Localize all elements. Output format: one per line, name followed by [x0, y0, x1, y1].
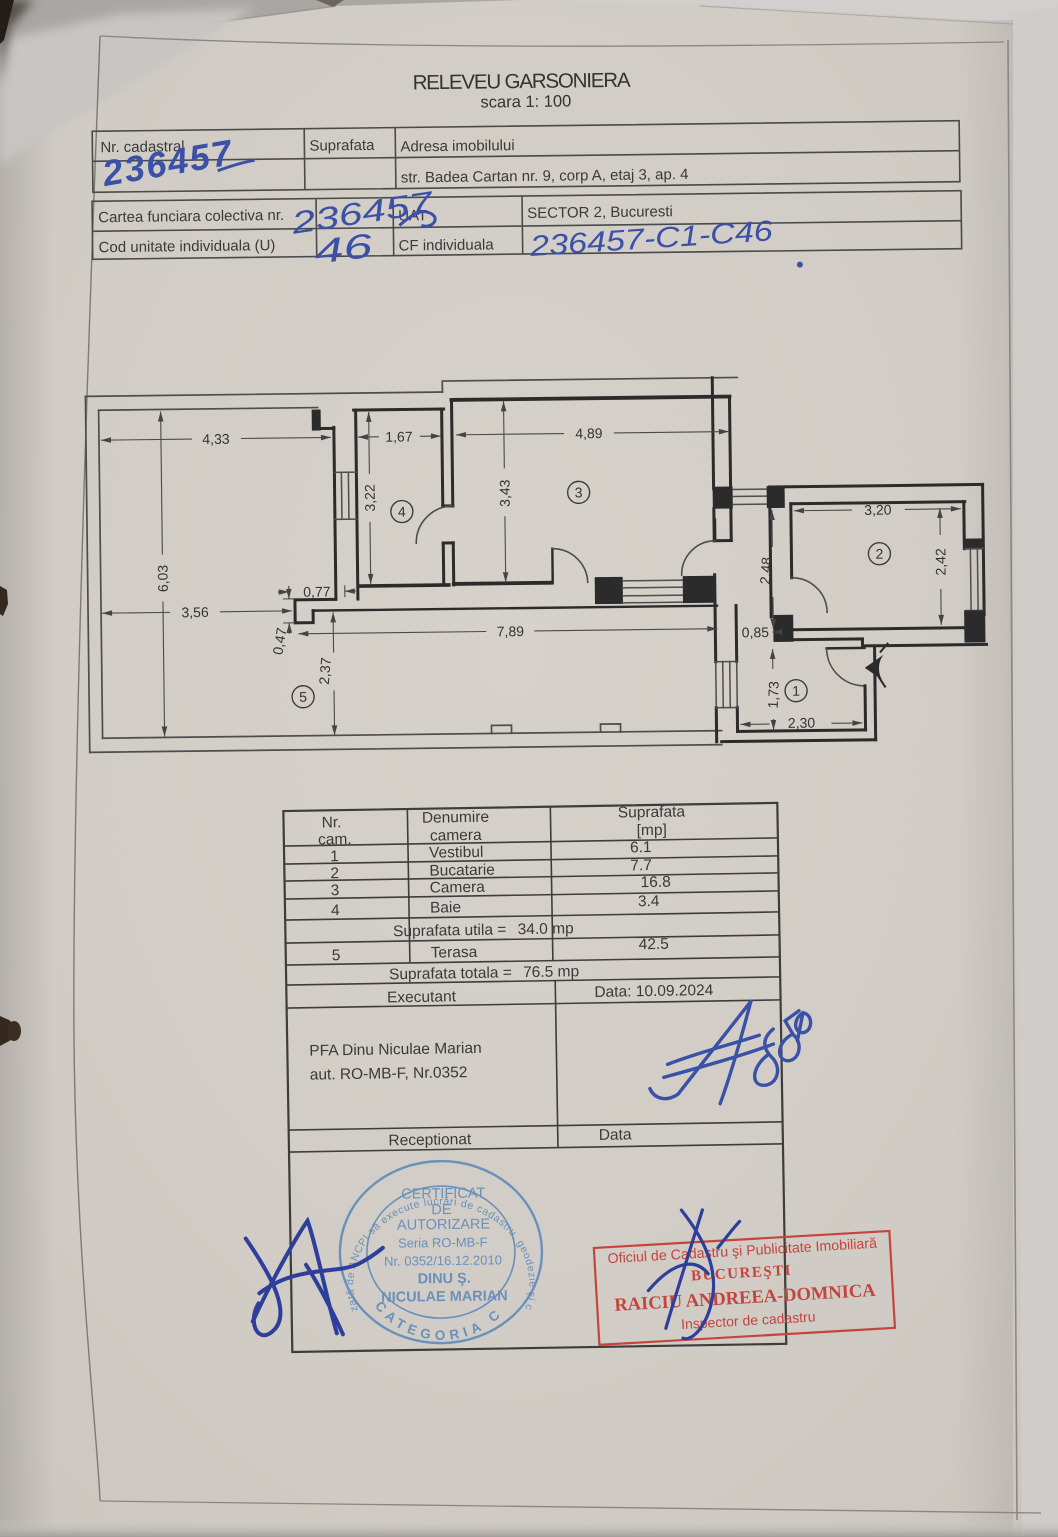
svg-text:PFA Dinu Niculae Marian: PFA Dinu Niculae Marian: [309, 1040, 482, 1060]
svg-text:4: 4: [398, 503, 406, 519]
svg-text:2,48: 2,48: [757, 556, 775, 585]
svg-text:Cartea funciara colectiva nr.: Cartea funciara colectiva nr.: [98, 207, 284, 226]
svg-text:[mp]: [mp]: [637, 822, 667, 839]
svg-text:4,33: 4,33: [202, 431, 230, 447]
svg-text:6,03: 6,03: [154, 565, 170, 593]
svg-text:AUTORIZARE: AUTORIZARE: [397, 1217, 491, 1234]
svg-text:46: 46: [312, 227, 374, 272]
svg-text:2: 2: [330, 865, 339, 882]
svg-text:3.4: 3.4: [638, 893, 660, 910]
svg-text:1: 1: [330, 848, 339, 865]
svg-text:3: 3: [575, 484, 583, 500]
svg-text:Cod unitate individuala (U): Cod unitate individuala (U): [99, 237, 276, 256]
svg-text:7.7: 7.7: [630, 857, 652, 874]
svg-text:3,20: 3,20: [864, 502, 892, 518]
svg-text:4: 4: [331, 902, 340, 919]
svg-text:CERTIFICAT: CERTIFICAT: [401, 1186, 485, 1203]
svg-text:cam.: cam.: [318, 831, 352, 849]
svg-text:3,56: 3,56: [181, 604, 209, 620]
svg-text:3,22: 3,22: [362, 484, 378, 512]
svg-text:Data: 10.09.2024: Data: 10.09.2024: [594, 982, 714, 1001]
svg-text:DE: DE: [431, 1202, 452, 1218]
svg-text:0,77: 0,77: [303, 583, 331, 599]
svg-text:2,42: 2,42: [932, 548, 948, 576]
svg-text:Nr.: Nr.: [322, 814, 342, 831]
svg-text:NICULAE MARIAN: NICULAE MARIAN: [381, 1288, 508, 1306]
svg-text:Camera: Camera: [430, 879, 486, 897]
svg-text:2: 2: [875, 546, 883, 562]
svg-text:DINU Ş.: DINU Ş.: [418, 1271, 471, 1288]
svg-text:3: 3: [331, 882, 340, 899]
svg-text:Receptionat: Receptionat: [388, 1131, 472, 1149]
svg-text:2,30: 2,30: [788, 714, 816, 730]
svg-text:Suprafata totala = 76.5 mp: Suprafata totala = 76.5 mp: [389, 963, 579, 983]
svg-text:1,73: 1,73: [765, 681, 782, 709]
svg-text:aut. RO-MB-F, Nr.0352: aut. RO-MB-F, Nr.0352: [310, 1064, 468, 1084]
svg-text:1,67: 1,67: [385, 428, 413, 444]
svg-text:Seria RO-MB-F: Seria RO-MB-F: [398, 1235, 488, 1251]
svg-text:str. Badea Cartan nr. 9, corp: str. Badea Cartan nr. 9, corp A, etaj 3,…: [401, 166, 689, 187]
svg-text:Suprafata: Suprafata: [618, 803, 686, 821]
svg-text:Vestibul: Vestibul: [429, 844, 484, 862]
svg-text:7,89: 7,89: [497, 623, 525, 639]
svg-text:2,37: 2,37: [316, 657, 334, 686]
svg-text:5: 5: [299, 689, 307, 705]
svg-text:Suprafata: Suprafata: [309, 137, 375, 155]
svg-text:0,85: 0,85: [742, 624, 770, 640]
svg-text:RELEVEU GARSONIERA: RELEVEU GARSONIERA: [412, 69, 631, 95]
svg-text:1: 1: [792, 683, 800, 699]
svg-text:Suprafata utila = 34.0 mp: Suprafata utila = 34.0 mp: [393, 920, 574, 940]
svg-text:Executant: Executant: [387, 988, 457, 1006]
svg-text:Baie: Baie: [430, 899, 461, 917]
svg-text:scara 1: 100: scara 1: 100: [480, 92, 571, 111]
svg-text:16.8: 16.8: [640, 874, 670, 891]
svg-text:42.5: 42.5: [638, 936, 668, 953]
svg-text:6.1: 6.1: [630, 839, 652, 856]
svg-text:SECTOR 2, Bucuresti: SECTOR 2, Bucuresti: [527, 203, 673, 222]
svg-text:camera: camera: [430, 827, 482, 845]
svg-text:Nr. 0352/16.12.2010: Nr. 0352/16.12.2010: [384, 1252, 502, 1268]
svg-text:Terasa: Terasa: [431, 944, 478, 962]
svg-text:Adresa imobilului: Adresa imobilului: [400, 137, 514, 155]
svg-text:4,89: 4,89: [575, 425, 603, 441]
svg-text:3,43: 3,43: [496, 479, 512, 507]
svg-text:Denumire: Denumire: [422, 809, 489, 827]
svg-text:CF individuala: CF individuala: [399, 236, 495, 254]
svg-text:5: 5: [332, 947, 341, 964]
svg-text:Data: Data: [599, 1126, 632, 1144]
svg-text:Bucatarie: Bucatarie: [429, 862, 495, 880]
